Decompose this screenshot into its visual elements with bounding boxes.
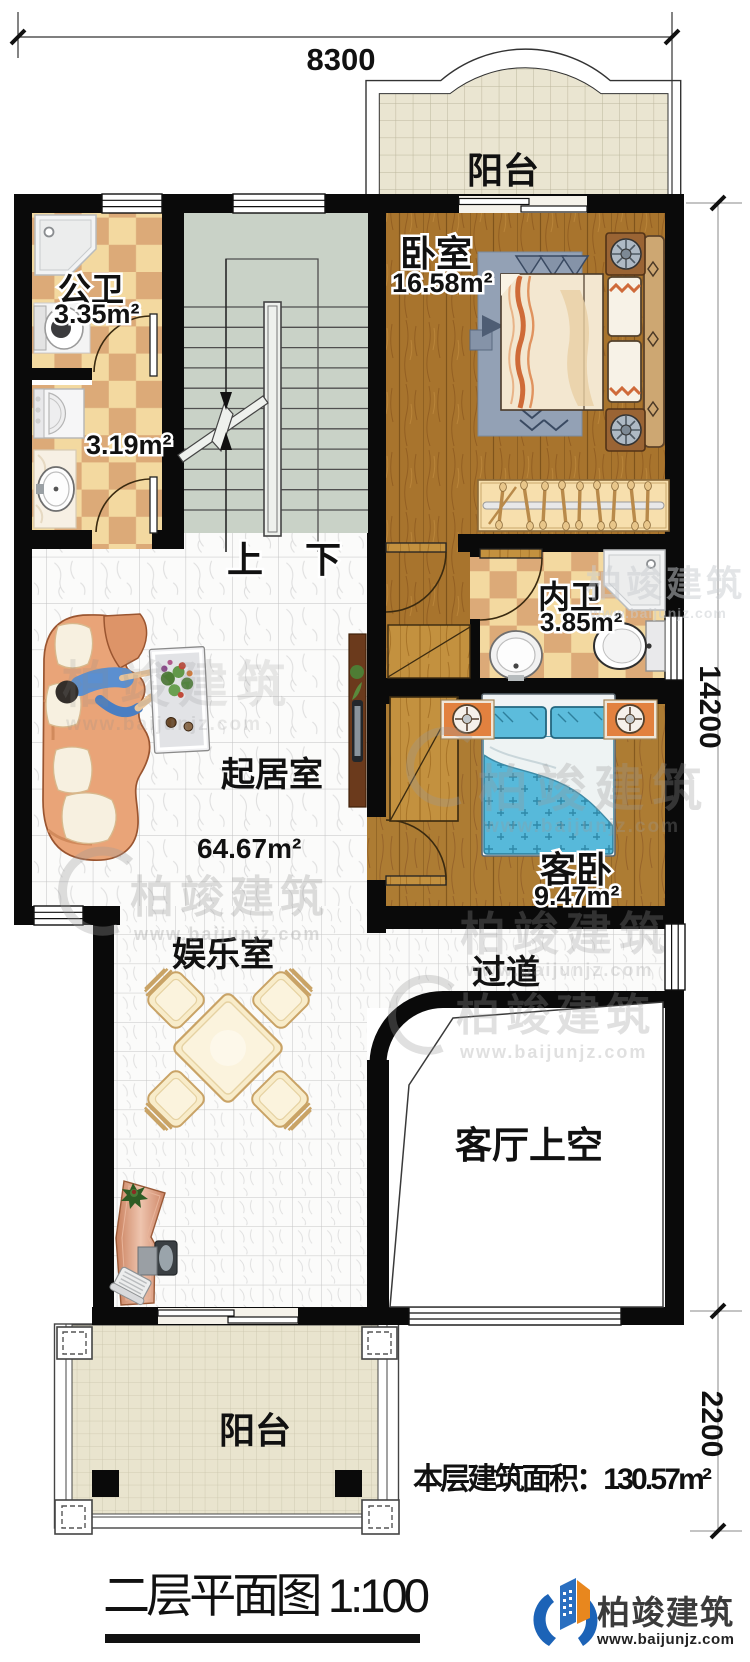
- svg-text:www.baijunjz.com: www.baijunjz.com: [459, 1042, 647, 1062]
- svg-text:64.67m²: 64.67m²: [197, 833, 301, 864]
- svg-text:www.baijunjz.com: www.baijunjz.com: [465, 960, 653, 980]
- svg-text:14200: 14200: [693, 665, 726, 748]
- svg-text:柏竣建筑: 柏竣建筑: [478, 761, 710, 817]
- svg-text:二层平面图 1:100: 二层平面图 1:100: [103, 1569, 430, 1622]
- svg-text:本层建筑面积：130.57m²: 本层建筑面积：130.57m²: [413, 1462, 712, 1496]
- svg-text:柏竣建筑: 柏竣建筑: [130, 873, 330, 922]
- svg-text:阳台: 阳台: [467, 150, 539, 191]
- svg-text:9.47m²: 9.47m²: [534, 881, 620, 911]
- svg-text:3.35m²: 3.35m²: [54, 299, 140, 329]
- svg-text:www.baijunjz.com: www.baijunjz.com: [483, 816, 680, 837]
- svg-text:16.58m²: 16.58m²: [392, 268, 493, 298]
- svg-text:2200: 2200: [695, 1391, 728, 1458]
- svg-text:柏竣建筑: 柏竣建筑: [62, 657, 294, 713]
- svg-text:www.baijunjz.com: www.baijunjz.com: [65, 714, 262, 735]
- svg-text:上: 上: [227, 539, 263, 580]
- svg-text:柏竣建筑: 柏竣建筑: [586, 563, 746, 604]
- svg-text:柏竣建筑: 柏竣建筑: [456, 991, 656, 1040]
- svg-text:www.baijunjz.com: www.baijunjz.com: [596, 1631, 734, 1648]
- svg-text:www.baijunjz.com: www.baijunjz.com: [133, 924, 321, 944]
- svg-text:阳台: 阳台: [219, 1410, 291, 1451]
- svg-text:3.19m²: 3.19m²: [86, 430, 172, 460]
- svg-text:柏竣建筑: 柏竣建筑: [460, 908, 672, 960]
- svg-text:起居室: 起居室: [221, 755, 323, 794]
- svg-text:下: 下: [305, 539, 341, 580]
- svg-text:8300: 8300: [307, 42, 376, 77]
- svg-text:www.baijunjz.com: www.baijunjz.com: [589, 605, 727, 621]
- svg-text:柏竣建筑: 柏竣建筑: [597, 1594, 733, 1631]
- svg-text:客厅上空: 客厅上空: [455, 1125, 603, 1166]
